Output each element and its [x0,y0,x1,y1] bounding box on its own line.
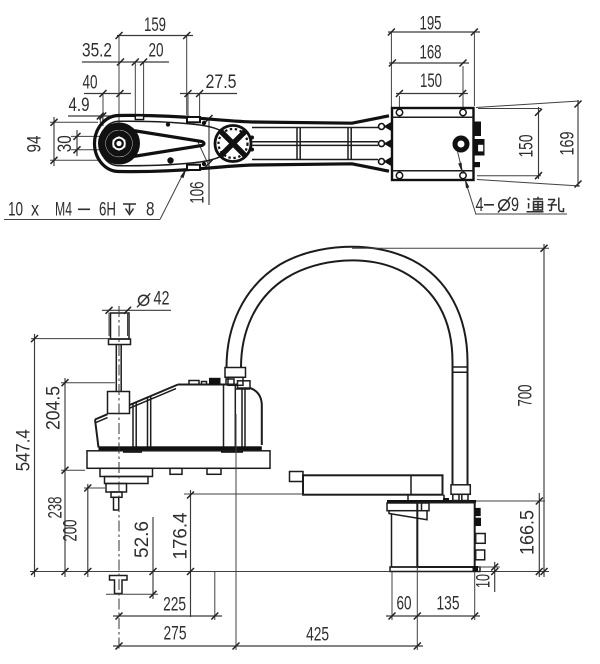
svg-text:10: 10 [474,574,495,588]
svg-text:42: 42 [154,289,170,310]
svg-text:20: 20 [149,41,164,62]
svg-text:425: 425 [306,625,329,646]
svg-text:60: 60 [397,594,412,615]
svg-text:106: 106 [188,182,209,204]
svg-text:176.4: 176.4 [171,512,192,559]
svg-text:4.9: 4.9 [69,95,90,116]
svg-text:159: 159 [144,15,166,36]
svg-text:169: 169 [558,132,579,156]
svg-text:M4: M4 [55,200,72,221]
svg-text:10: 10 [8,200,23,221]
svg-text:52.6: 52.6 [132,521,153,558]
svg-text:x: x [31,200,39,221]
svg-text:150: 150 [517,135,538,158]
svg-text:35.2: 35.2 [82,41,112,62]
svg-text:27.5: 27.5 [206,72,237,93]
svg-text:225: 225 [163,595,186,616]
svg-text:547.4: 547.4 [14,429,35,471]
svg-text:135: 135 [437,594,460,615]
svg-text:168: 168 [420,43,442,64]
svg-text:150: 150 [420,71,442,92]
svg-text:9: 9 [511,195,519,216]
svg-text:238: 238 [46,497,67,519]
svg-text:94: 94 [25,135,46,152]
svg-text:8: 8 [146,200,155,221]
svg-text:30: 30 [55,135,76,152]
svg-text:200: 200 [61,520,82,542]
svg-text:275: 275 [164,624,187,645]
svg-text:6H: 6H [99,200,116,221]
svg-text:195: 195 [420,14,442,35]
svg-text:40: 40 [83,73,98,94]
svg-text:700: 700 [516,385,537,407]
svg-text:166.5: 166.5 [518,510,539,555]
svg-text:204.5: 204.5 [44,386,65,430]
svg-text:4: 4 [476,195,484,216]
